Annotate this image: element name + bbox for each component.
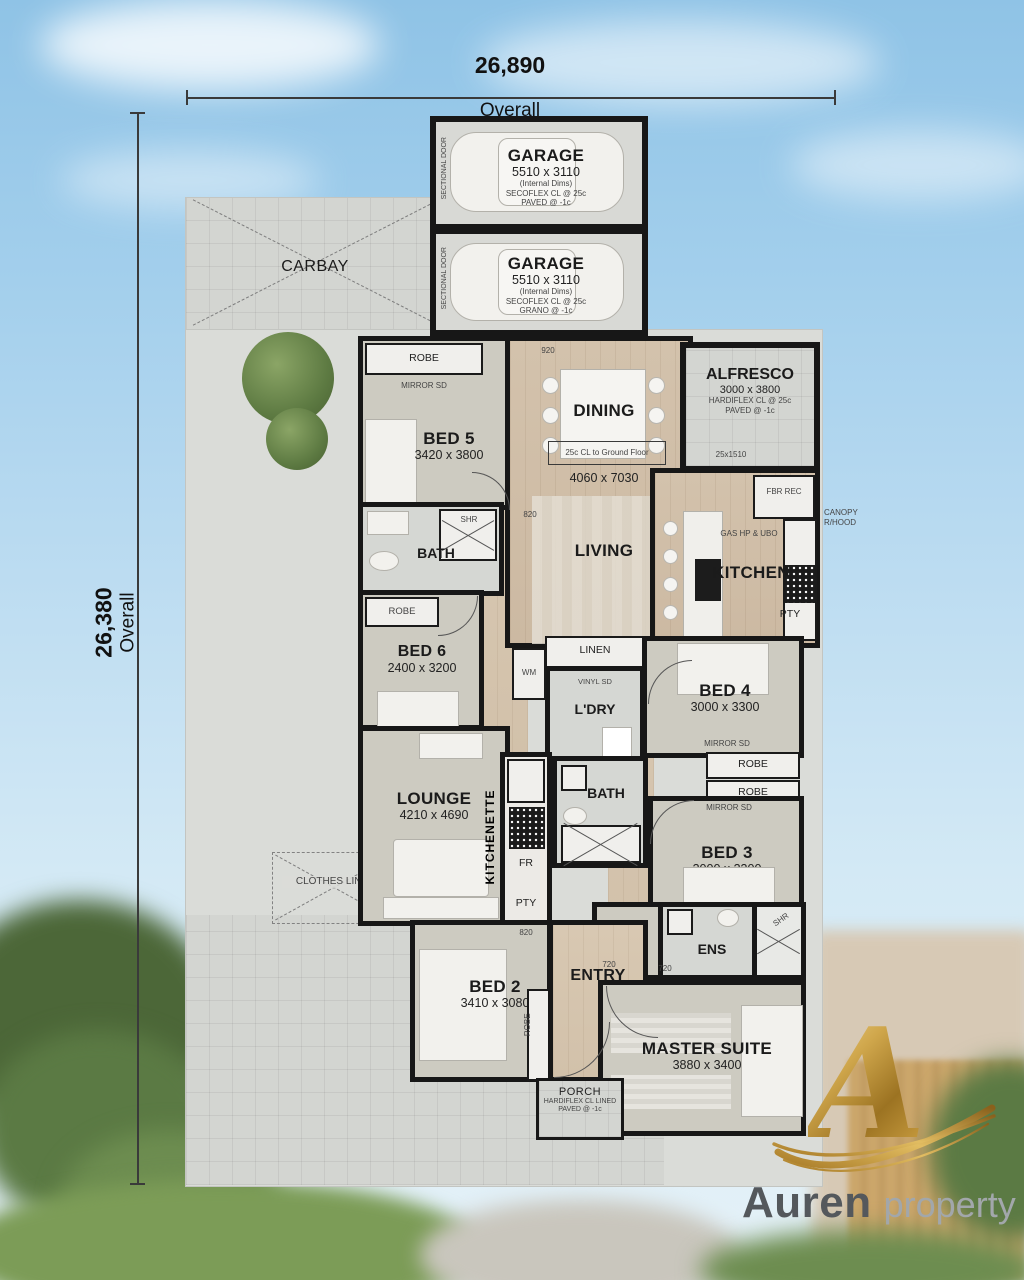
toilet-icon [717, 909, 739, 927]
sofa-base-icon [383, 897, 499, 919]
stool-icon [663, 577, 678, 592]
door-size-label: 820 [512, 510, 548, 520]
laundry-name: L'DRY [550, 701, 640, 717]
robe-cabinet: ROBE [706, 752, 800, 779]
master-text: MASTER SUITE 3880 x 3400 [627, 1039, 787, 1072]
rug-icon [532, 496, 664, 644]
garage1-text: GARAGE 5510 x 3110 (Internal Dims) SECOF… [466, 146, 626, 208]
kitchen-pantry-label: PTY [767, 608, 813, 620]
bath2-name: BATH [571, 785, 641, 801]
kitchenette-pantry-label: PTY [505, 897, 547, 909]
bed6-robe-cabinet: ROBE [365, 597, 439, 627]
garage2-text: GARAGE 5510 x 3110 (Internal Dims) SECOF… [466, 254, 626, 316]
laundry-tub-icon [602, 727, 632, 757]
cloud [40, 0, 380, 90]
bed6-robe-label: ROBE [367, 606, 437, 617]
alfresco-note2: PAVED @ -1c [688, 406, 812, 416]
living-note: 25c CL to Ground Floor [565, 448, 648, 458]
porch-note1: HARDIFLEX CL LINED [520, 1098, 640, 1106]
laundry-vinyl-label: VINYL SD [550, 677, 640, 686]
linen-cabinet: LINEN [545, 636, 645, 668]
fridge-recess-label: FBR REC [755, 487, 813, 497]
room-bath1: SHR BATH [358, 502, 504, 596]
bed5-text: BED 5 3420 x 3800 [391, 429, 507, 462]
garage1-note3: PAVED @ -1c [466, 198, 626, 208]
stool-icon [663, 521, 678, 536]
living-name: LIVING [544, 541, 664, 560]
bathtub-icon [561, 825, 641, 863]
dimension-tick [186, 90, 188, 105]
living-notebox: 25c CL to Ground Floor [548, 441, 666, 465]
table-icon [419, 733, 483, 759]
garage1-name: GARAGE [466, 146, 626, 165]
wm-label: WM [514, 668, 544, 678]
dimension-left: 26,380 Overall [91, 513, 140, 733]
canopy-rhood-label: CANOPY R/HOOD [824, 508, 884, 527]
chair-icon [648, 377, 665, 394]
bath1-shower-label: SHR [449, 515, 489, 525]
porch-text: PORCH HARDIFLEX CL LINED PAVED @ -1c [520, 1086, 640, 1115]
washing-machine: WM [512, 648, 546, 700]
garage1-dims: 5510 x 3110 [466, 165, 626, 179]
master-dims: 3880 x 3400 [627, 1058, 787, 1072]
master-name: MASTER SUITE [627, 1039, 787, 1058]
bed5-dims: 3420 x 3800 [391, 448, 507, 462]
cloud [790, 130, 1024, 200]
path-photo [420, 1200, 740, 1280]
bed5-robe-label: ROBE [367, 352, 481, 364]
dimension-tick [834, 90, 836, 105]
alfresco-dims: 3000 x 3800 [688, 384, 812, 396]
door-size-label: 920 [530, 346, 566, 356]
door-size-label: 820 [508, 928, 544, 938]
kitchenette-sink [507, 759, 545, 803]
robe-label: ROBE [708, 758, 798, 770]
bed4-mirror-label: MIRROR SD [677, 739, 777, 749]
room-alfresco: ALFRESCO 3000 x 3800 HARDIFLEX CL @ 25c … [680, 342, 820, 472]
logo-mark: A [788, 1008, 1008, 1188]
kitchen-name: KITCHEN [701, 563, 801, 582]
lounge-dims: 4210 x 4690 [369, 808, 499, 822]
grass-photo [0, 1180, 480, 1280]
kitchen-gas-label: GAS HP & UBO [711, 529, 787, 539]
alfresco-window-label: 25x1510 [696, 450, 766, 460]
bed6-text: BED 6 2400 x 3200 [367, 643, 477, 675]
garage2-dims: 5510 x 3110 [466, 273, 626, 287]
ens-shower: SHR [752, 902, 806, 980]
garage2-note2: SECOFLEX CL @ 25c [466, 297, 626, 307]
linen-label: LINEN [547, 644, 643, 656]
bed-icon [377, 691, 459, 727]
room-kitchen: FBR REC GAS HP & UBO KITCHEN PTY [650, 468, 820, 648]
vanity-icon [367, 511, 409, 535]
stool-icon [663, 605, 678, 620]
logo-swoosh-icon [770, 1100, 1000, 1180]
stool-icon [663, 549, 678, 564]
logo-wordmark: Aurenproperty group [742, 1178, 1024, 1228]
toilet-icon [563, 807, 587, 825]
kitchenette-cooktop-icon [509, 807, 545, 849]
kitchenette-label: KITCHENETTE [483, 767, 497, 907]
garage1-note1: (Internal Dims) [466, 179, 626, 189]
lounge-name: LOUNGE [369, 789, 499, 808]
bed5-mirror-label: MIRROR SD [369, 381, 479, 391]
alfresco-note1: HARDIFLEX CL @ 25c [688, 396, 812, 406]
carbay-label: CARBAY [230, 258, 400, 276]
garage2-name: GARAGE [466, 254, 626, 273]
logo-brand-suffix: property group [884, 1184, 1024, 1225]
porch-note2: PAVED @ -1c [520, 1106, 640, 1114]
porch-name: PORCH [520, 1086, 640, 1098]
bed3-name: BED 3 [669, 843, 785, 862]
bed5-name: BED 5 [391, 429, 507, 448]
garage2-note1: (Internal Dims) [466, 287, 626, 297]
garage2-door-label: SECTIONAL DOOR [441, 233, 449, 323]
garage2-note3: GRANO @ -1c [466, 306, 626, 316]
living-dims: 4060 x 7030 [544, 471, 664, 485]
dimension-left-value: 26,380 [91, 513, 118, 733]
mirror-icon [667, 909, 693, 935]
room-garage-2: GARAGE 5510 x 3110 (Internal Dims) SECOF… [430, 228, 648, 336]
room-laundry: VINYL SD L'DRY [545, 666, 645, 764]
bed6-dims: 2400 x 3200 [367, 661, 477, 675]
fridge-recess: FBR REC [753, 475, 815, 519]
dimension-top-value: 26,890 [400, 52, 620, 79]
bed6-name: BED 6 [367, 643, 477, 661]
kitchenette-fridge-label: FR [505, 857, 547, 869]
bed3-mirror-label: MIRROR SD [679, 803, 779, 813]
room-bath2: BATH [552, 756, 648, 868]
tree-icon [266, 408, 328, 470]
logo-brand: Auren [742, 1178, 872, 1227]
chair-icon [542, 377, 559, 394]
garage1-door-label: SECTIONAL DOOR [441, 123, 449, 213]
door-size-label: 720 [594, 960, 624, 970]
lounge-text: LOUNGE 4210 x 4690 [369, 789, 499, 822]
bed5-robe-cabinet: ROBE [365, 343, 483, 375]
dimension-tick [130, 112, 145, 114]
dimension-line-top [186, 97, 836, 99]
room-garage-1: GARAGE 5510 x 3110 (Internal Dims) SECOF… [430, 116, 648, 230]
ens-name: ENS [677, 941, 747, 957]
dimension-tick [130, 1183, 145, 1185]
alfresco-name: ALFRESCO [688, 366, 812, 384]
dining-name: DINING [544, 401, 664, 420]
floorplan-scene: 26,890 Overall 26,380 Overall CARBAY CLO… [0, 0, 1024, 1280]
door-size-label: 720 [650, 964, 680, 974]
paved-area [186, 915, 414, 1185]
dimension-left-label: Overall [118, 513, 140, 733]
bed2-robe-label: ROBE [523, 985, 533, 1065]
sofa-icon [393, 839, 489, 897]
alfresco-text: ALFRESCO 3000 x 3800 HARDIFLEX CL @ 25c … [688, 366, 812, 415]
room-kitchenette: FR PTY [500, 752, 552, 928]
bath1-name: BATH [391, 545, 481, 561]
garage1-note2: SECOFLEX CL @ 25c [466, 189, 626, 199]
